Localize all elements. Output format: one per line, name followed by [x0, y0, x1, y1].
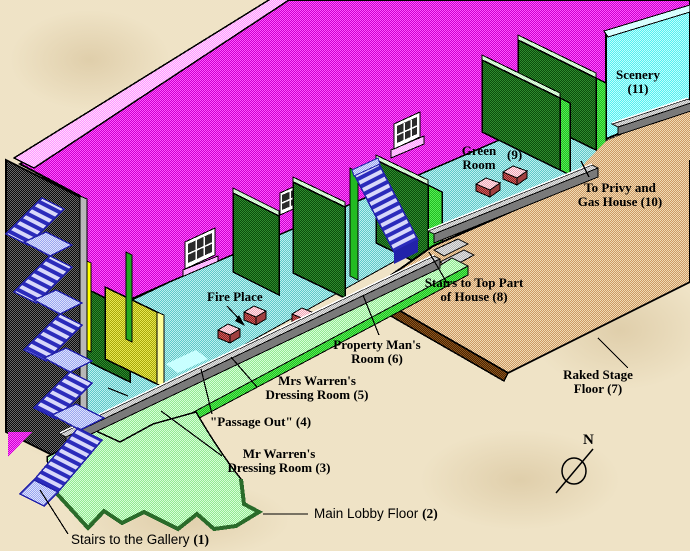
compass-north-label: N	[583, 432, 594, 449]
label-mr-warren: Mr Warren's Dressing Room (3)	[216, 447, 342, 475]
label-scenery: Scenery (11)	[590, 68, 686, 96]
label-raked-stage: Raked Stage Floor (7)	[548, 368, 648, 396]
label-stairs-top: Stairs to Top Part of House (8)	[418, 276, 530, 304]
label-property-room: Property Man's Room (6)	[327, 338, 427, 366]
label-mrs-warren: Mrs Warren's Dressing Room (5)	[254, 374, 380, 402]
label-green-room: Green Room (9)	[452, 144, 506, 172]
label-gallery: Stairs to the Gallery (1)	[71, 532, 209, 548]
green-post	[126, 252, 132, 342]
label-main-lobby: Main Lobby Floor (2)	[314, 506, 438, 522]
isometric-drawing	[0, 0, 690, 551]
label-privy: To Privy and Gas House (10)	[566, 181, 674, 209]
theatre-isometric-diagram: Scenery (11) Green Room (9) To Privy and…	[0, 0, 690, 551]
label-passage-out: "Passage Out" (4)	[210, 415, 311, 429]
green-post	[350, 168, 358, 280]
label-fire-place: Fire Place	[207, 290, 263, 304]
